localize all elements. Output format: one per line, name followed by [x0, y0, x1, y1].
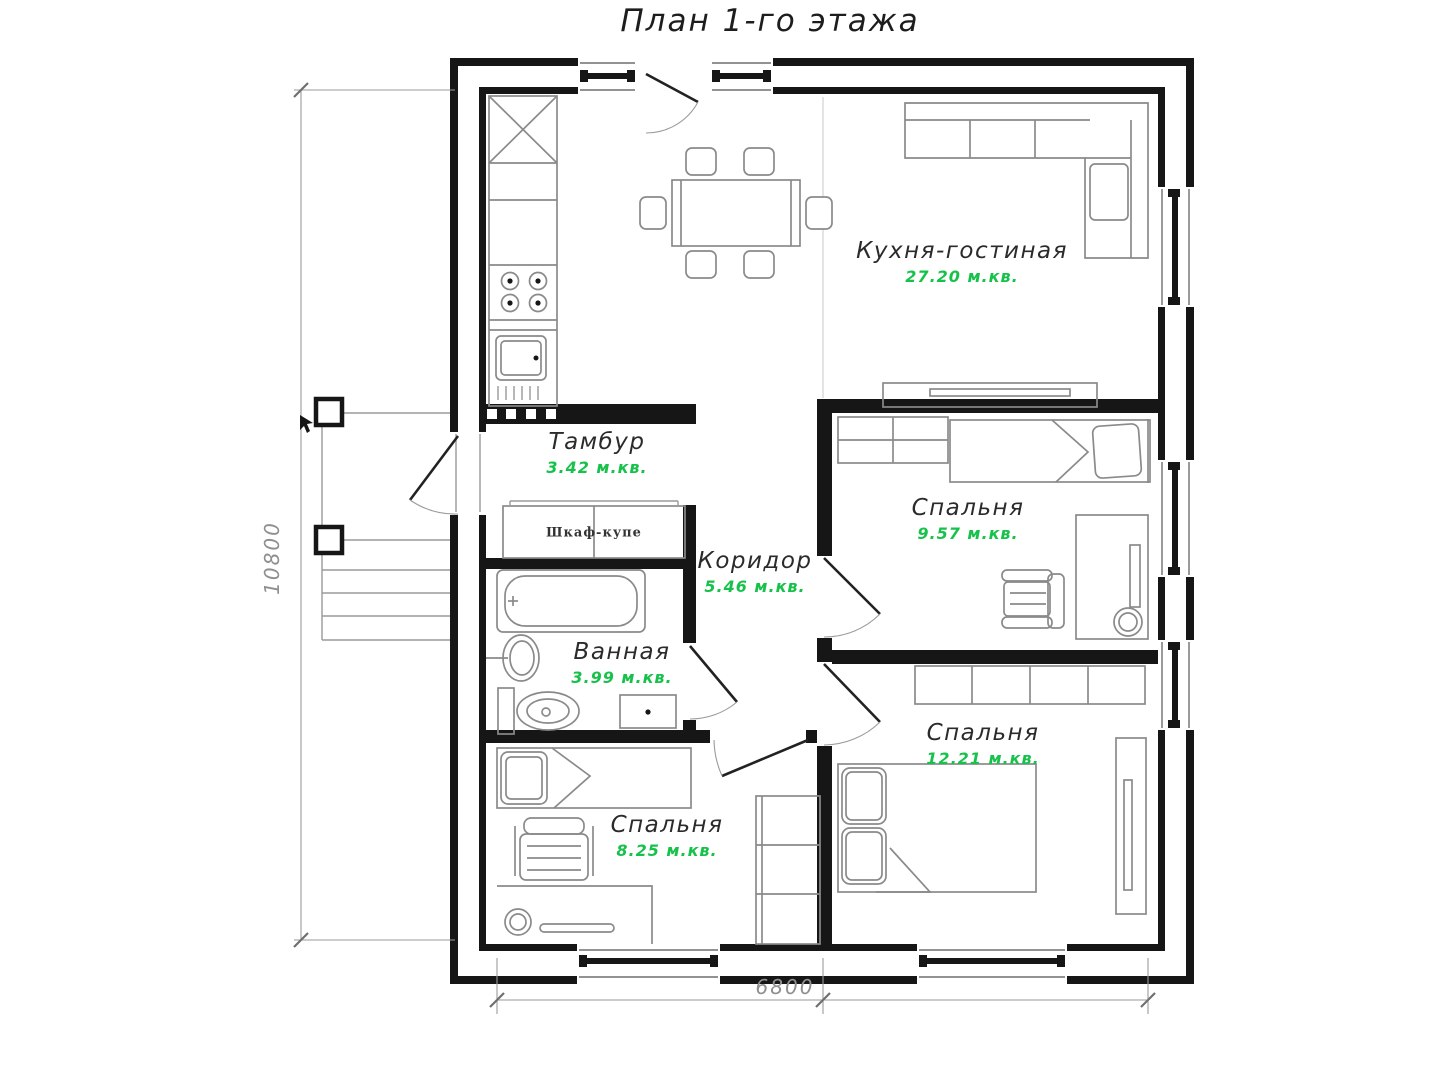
kitchen-counter: [489, 96, 557, 406]
kitchen-sink: [496, 336, 546, 400]
room-label-bedroom2: Спальня 12.21 м.кв.: [926, 720, 1039, 768]
wardrobe: [915, 666, 1145, 704]
bathroom-door: [690, 646, 737, 719]
washbasin: [486, 635, 539, 681]
porch: [316, 399, 450, 640]
bathtub: [497, 570, 645, 632]
plan-linework: [0, 0, 1440, 1080]
closet-label: Шкаф-купе: [546, 526, 642, 541]
dining-table: [640, 148, 832, 278]
desk: [1076, 515, 1148, 639]
fridge-cabinet-x: [489, 96, 557, 163]
porch-post: [316, 527, 342, 553]
room-name: Спальня: [611, 812, 724, 838]
bedroom1-door: [824, 558, 880, 637]
room-area: 12.21 м.кв.: [926, 749, 1039, 768]
page-title: План 1-го этажа: [620, 3, 919, 39]
room-label-bedroom3: Спальня 8.25 м.кв.: [611, 812, 724, 860]
room-area: 5.46 м.кв.: [697, 577, 812, 596]
room-area: 3.99 м.кв.: [571, 668, 672, 687]
corner-sofa: [905, 103, 1148, 258]
mouse-cursor: [300, 415, 313, 433]
room-name: Коридор: [697, 548, 812, 574]
room-name: Кухня-гостиная: [856, 238, 1068, 264]
armchair: [515, 818, 593, 880]
room-name: Спальня: [912, 495, 1025, 521]
shelving-unit: [756, 796, 820, 944]
room-area: 3.42 м.кв.: [546, 458, 647, 477]
room-name: Тамбур: [546, 429, 647, 455]
porch-steps: [322, 570, 450, 640]
floor-plan-page: План 1-го этажа Кухня-гостиная 27.20 м.к…: [0, 0, 1440, 1080]
room-name: Ванная: [571, 639, 672, 665]
single-bed: [497, 748, 691, 808]
double-bed: [838, 764, 1036, 892]
room-label-tambur: Тамбур 3.42 м.кв.: [546, 429, 647, 477]
bedroom2-furniture: [838, 666, 1146, 914]
desk: [497, 886, 652, 944]
room-label-bedroom1: Спальня 9.57 м.кв.: [912, 495, 1025, 543]
room-area: 27.20 м.кв.: [856, 267, 1068, 286]
wardrobe: [838, 417, 948, 463]
dimension-left: [294, 83, 455, 947]
room-label-kitchen-living: Кухня-гостиная 27.20 м.кв.: [856, 238, 1068, 286]
room-area: 9.57 м.кв.: [912, 524, 1025, 543]
stove: [502, 273, 547, 312]
tall-cabinet: [1116, 738, 1146, 914]
room-label-bathroom: Ванная 3.99 м.кв.: [571, 639, 672, 687]
toilet: [498, 688, 579, 734]
bedroom3-door: [714, 740, 808, 776]
washing-machine: [620, 695, 676, 728]
dimension-width-label: 6800: [756, 975, 815, 999]
room-area: 8.25 м.кв.: [611, 841, 724, 860]
single-bed: [950, 419, 1150, 483]
room-name: Спальня: [926, 720, 1039, 746]
armchair: [1002, 570, 1064, 628]
bedroom2-door: [824, 664, 880, 745]
porch-post: [316, 399, 342, 425]
room-label-corridor: Коридор 5.46 м.кв.: [697, 548, 812, 596]
dimension-height-label: 10800: [260, 521, 284, 595]
